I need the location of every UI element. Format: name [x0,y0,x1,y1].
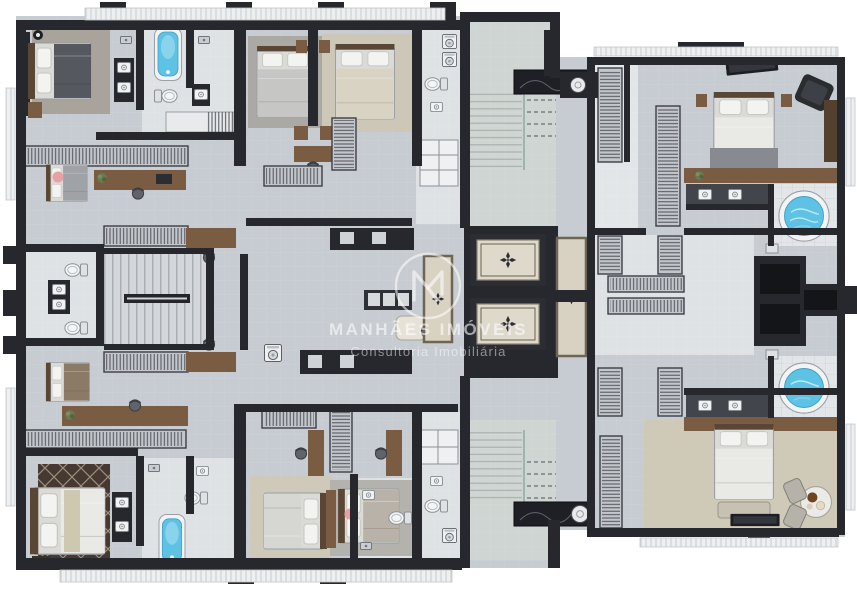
bed [46,363,89,402]
toilet-icon [425,500,448,513]
shower-head-icon [361,543,372,550]
nightstand [296,40,307,53]
washbasin-icon [116,498,129,508]
shower-head-icon [121,37,132,44]
closet-rack [656,106,680,226]
desk [308,430,324,476]
plant-icon [97,173,107,183]
washing-machine-icon [442,52,456,66]
closet-rack [22,146,188,166]
bed-blanket [710,148,778,168]
nightstand [294,126,308,140]
closet-rack [330,408,352,472]
toilet-icon [65,264,88,277]
washbasin-icon [699,190,712,200]
shower-head-icon [149,465,160,472]
washbasin-icon [431,476,443,485]
desk [94,170,186,190]
washbasin-icon [197,466,209,475]
round-basin [572,506,589,523]
desk-chair-icon [132,188,143,199]
washbasin-icon [118,63,131,73]
toilet-icon [425,78,448,91]
bathtub-icon [159,514,185,565]
desk-chair-icon [129,400,140,411]
elevator-core [464,226,558,378]
bed [46,165,87,202]
closet-rack [658,368,682,416]
closet-rack [104,352,188,372]
desk-chair-icon [375,448,386,459]
bed [257,46,313,117]
hall-rug [424,256,452,342]
bathtub-icon [155,28,182,81]
kitchen-cabinet [420,140,458,186]
nightstand [781,94,792,107]
washing-machine-icon [442,34,456,48]
closet-rack [264,166,322,186]
washbasin-icon [53,285,66,295]
toilet-icon [65,322,88,335]
desk-items [156,174,172,184]
washbasin-icon [363,490,375,499]
closet-rack [24,430,186,448]
staircase [104,254,208,344]
elevator [470,234,546,286]
closet-rack [332,118,356,170]
bed-runner [64,490,80,552]
washbasin-icon [431,102,443,111]
tv [730,514,779,526]
washbasin-icon [729,190,742,200]
closet-rack [658,236,682,274]
closet-rack [104,226,188,246]
toilet-icon [389,512,412,525]
closet-rack [206,112,234,132]
bed [28,43,91,99]
washing-machine-icon [265,345,282,362]
pink-pillow [53,172,64,183]
closet-rack [608,298,684,314]
washbasin-icon [118,83,131,93]
desk [62,406,188,426]
desk [186,228,236,248]
nightstand [696,94,707,107]
washbasin-icon [195,90,208,100]
kitchen-cabinet [418,430,458,464]
closet-rack [262,410,316,428]
shower-head-icon [199,37,210,44]
washbasin-icon [116,522,129,532]
elevator [470,298,546,350]
closet-rack [600,436,622,528]
plant-icon [65,410,75,420]
bed [264,493,327,549]
nightstand [319,40,330,53]
nightstand [326,490,336,548]
console [684,168,838,183]
washing-machine-icon [442,528,456,542]
tall-wardrobe [824,100,838,162]
plant-icon [695,171,704,180]
closet-rack [598,68,622,162]
desk-chair-icon [295,448,306,459]
washbasin-icon [729,401,742,411]
washbasin-icon [699,401,712,411]
closet-rack [598,368,622,416]
desk [186,352,236,372]
closet-rack [608,276,684,292]
washbasin-icon [53,300,66,310]
nightstand [28,102,42,118]
floor-plan-image: MANHÃES IMÓVEIS Consultoria Imobiliária [0,0,857,600]
bed [715,424,774,499]
desk [386,430,402,476]
desk [294,146,332,162]
closet-rack [598,236,622,274]
kitchen-cabinet [364,290,412,310]
bed [336,44,395,119]
toilet-icon [155,90,178,103]
floor-plan-drawing [0,0,857,600]
